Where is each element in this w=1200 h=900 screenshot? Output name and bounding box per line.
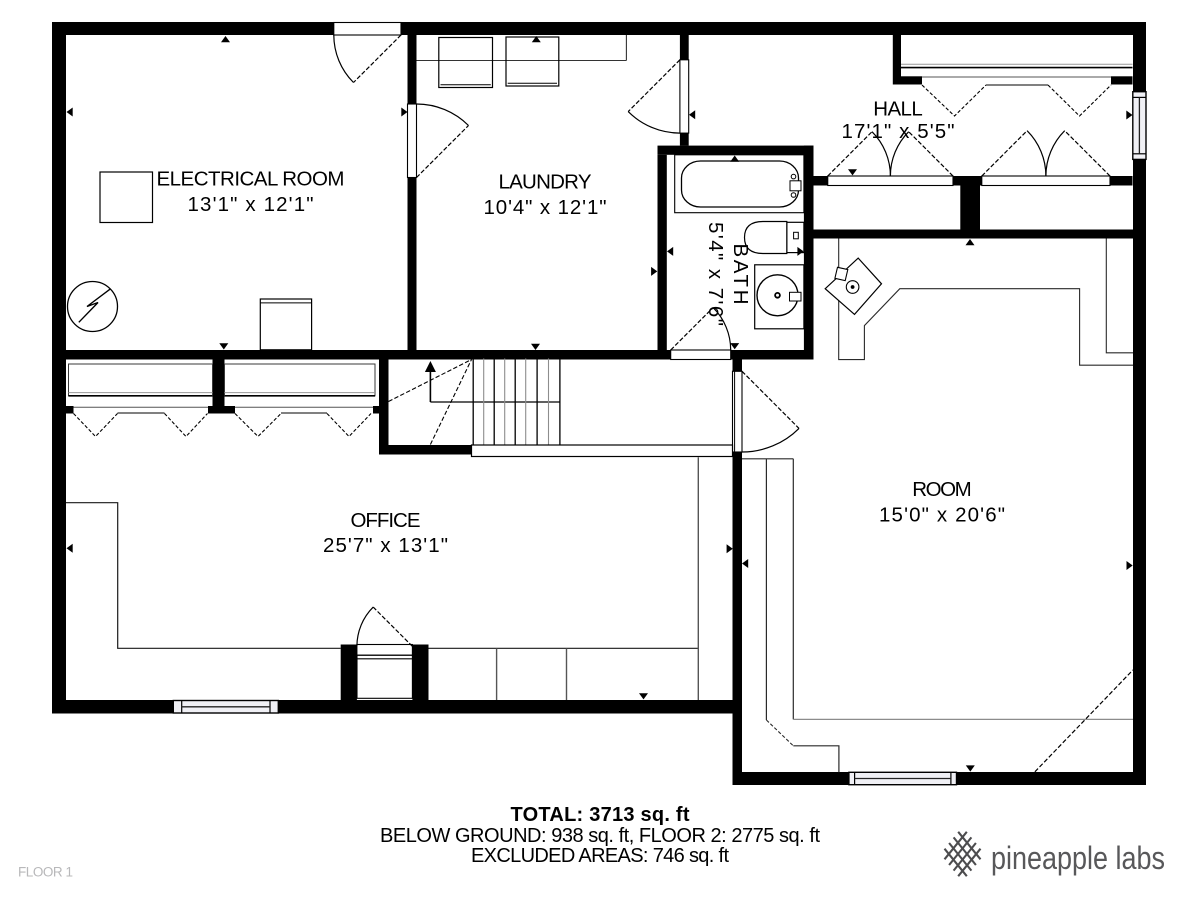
svg-text:HALL: HALL — [873, 98, 923, 121]
svg-text:EXCLUDED AREAS: 746 sq. ft: EXCLUDED AREAS: 746 sq. ft — [471, 845, 729, 867]
svg-text:13'1" x 12'1": 13'1" x 12'1" — [188, 193, 314, 216]
svg-text:ELECTRICAL ROOM: ELECTRICAL ROOM — [157, 168, 345, 191]
svg-text:TOTAL: 3713 sq. ft: TOTAL: 3713 sq. ft — [511, 804, 690, 826]
svg-text:5'4" x 7'6": 5'4" x 7'6" — [704, 222, 727, 326]
svg-text:BATH: BATH — [729, 244, 752, 305]
svg-text:15'0" x 20'6": 15'0" x 20'6" — [879, 504, 1005, 527]
svg-text:pineapple labs: pineapple labs — [991, 840, 1165, 876]
svg-text:LAUNDRY: LAUNDRY — [499, 171, 592, 194]
svg-text:OFFICE: OFFICE — [351, 509, 421, 532]
svg-text:25'7" x 13'1": 25'7" x 13'1" — [323, 534, 448, 557]
svg-text:17'1" x 5'5": 17'1" x 5'5" — [842, 120, 955, 143]
svg-text:ROOM: ROOM — [912, 478, 972, 501]
svg-text:10'4" x 12'1": 10'4" x 12'1" — [484, 196, 607, 219]
svg-text:FLOOR 1: FLOOR 1 — [18, 865, 73, 880]
svg-text:BELOW GROUND: 938 sq. ft, FLOO: BELOW GROUND: 938 sq. ft, FLOOR 2: 2775 … — [380, 825, 820, 847]
